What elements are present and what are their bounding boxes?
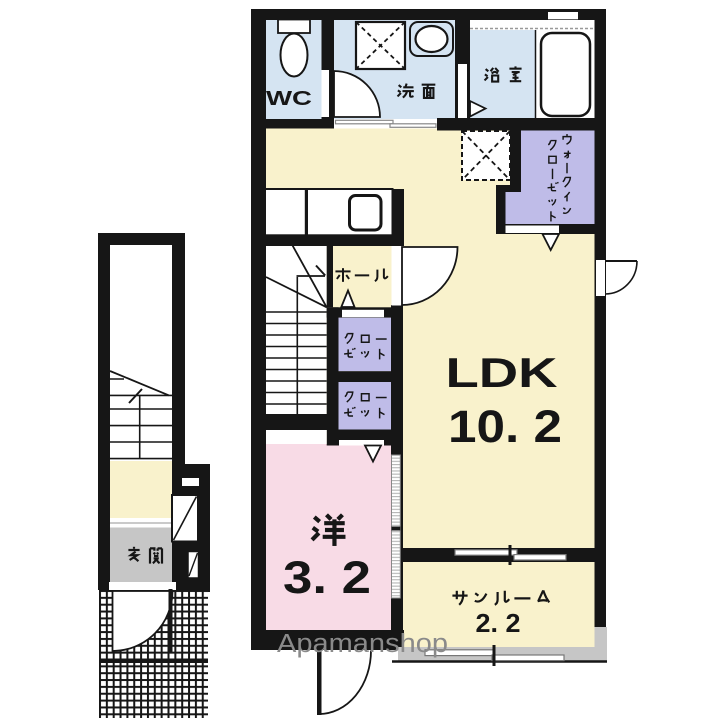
svg-text:10. 2: 10. 2	[448, 401, 562, 452]
svg-text:3. 2: 3. 2	[283, 552, 371, 603]
svg-text:Apamanshop: Apamanshop	[277, 630, 448, 658]
svg-text:2. 2: 2. 2	[476, 608, 521, 638]
svg-text:WC: WC	[266, 88, 312, 110]
svg-text:LDK: LDK	[446, 349, 558, 396]
